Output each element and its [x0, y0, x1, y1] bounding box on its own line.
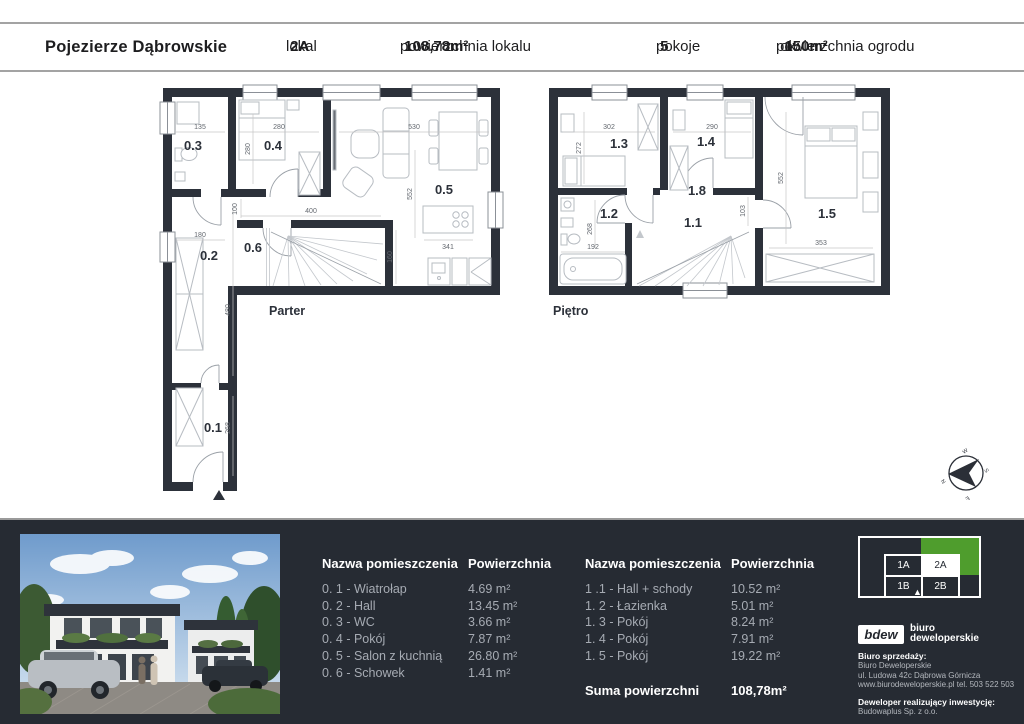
dim-280-v: 280: [245, 143, 252, 155]
area-field: powierzchnia lokalu 108,78m²: [400, 24, 468, 70]
logo-line-2: deweloperskie: [910, 634, 979, 644]
table-row: 1. 3 - Pokój8.24 m²: [585, 614, 814, 631]
footer-band: Nazwa pomieszczenia Powierzchnia 0. 1 - …: [0, 518, 1024, 724]
dim-552-pietro: 552: [778, 172, 785, 184]
building-photo: [20, 534, 280, 714]
sales-office-name: Biuro Deweloperskie: [858, 661, 1018, 671]
unit-selector: 1A 2A 1B 2B ▲: [858, 536, 981, 598]
row-area: 8.24 m²: [731, 614, 773, 631]
room-0-5: 0.5: [435, 182, 453, 197]
row-area: 7.87 m²: [468, 631, 510, 648]
table-row: 0. 6 - Schowek1.41 m²: [322, 665, 551, 682]
row-name: 1. 3 - Pokój: [585, 614, 731, 631]
compass-w: W: [962, 447, 970, 455]
row-area: 5.01 m²: [731, 598, 773, 615]
compass-e: E: [964, 494, 971, 500]
floorplan-parter: 135 280 530 280 552 400 100 341 160 180 …: [158, 83, 503, 500]
room-1-3: 1.3: [610, 136, 628, 151]
col-name-header: Nazwa pomieszczenia: [585, 556, 731, 573]
sum-label: Suma powierzchni: [585, 683, 731, 698]
room-0-1: 0.1: [204, 420, 222, 435]
table-header: Nazwa pomieszczenia Powierzchnia: [322, 556, 551, 573]
sum-value: 108,78m²: [731, 683, 787, 698]
developer-label: Deweloper realizujący inwestycję:: [858, 697, 1018, 707]
parter-stairs: [267, 228, 384, 286]
table-row: 1. 2 - Łazienka5.01 m²: [585, 598, 814, 615]
sales-office-contact: www.biurodeweloperskie.pl tel. 503 522 5…: [858, 680, 1018, 690]
dim-480: 480: [225, 304, 232, 316]
dim-290: 290: [706, 124, 718, 131]
table-row: 0. 3 - WC3.66 m²: [322, 614, 551, 631]
table-row: 1. 5 - Pokój19.22 m²: [585, 648, 814, 665]
row-name: 1 .1 - Hall + schody: [585, 581, 731, 598]
table-row: 0. 5 - Salon z kuchnią26.80 m²: [322, 648, 551, 665]
row-name: 0. 4 - Pokój: [322, 631, 468, 648]
room-1-4: 1.4: [697, 134, 716, 149]
dim-268-pietro: 268: [587, 223, 594, 235]
bdew-logo-mark: bdew: [858, 625, 904, 644]
dim-180: 180: [194, 232, 206, 239]
table-header: Nazwa pomieszczenia Powierzchnia: [585, 556, 814, 573]
dim-302: 302: [603, 124, 615, 131]
row-name: 0. 6 - Schowek: [322, 665, 468, 682]
table-row: 0. 4 - Pokój7.87 m²: [322, 631, 551, 648]
parter-furniture: [175, 100, 491, 446]
dim-100: 100: [232, 203, 239, 215]
unit-cell-1a[interactable]: 1A: [884, 554, 923, 577]
room-0-4: 0.4: [264, 138, 283, 153]
row-area: 4.69 m²: [468, 581, 510, 598]
dim-280-h: 280: [273, 124, 285, 131]
unit-cell-2a[interactable]: 2A: [921, 554, 960, 577]
unit-cell-2b[interactable]: 2B: [921, 575, 960, 598]
garden-approx: ok.: [780, 24, 800, 70]
row-name: 1. 5 - Pokój: [585, 648, 731, 665]
row-name: 0. 3 - WC: [322, 614, 468, 631]
row-name: 1. 4 - Pokój: [585, 631, 731, 648]
rooms-label: pokoje: [656, 24, 700, 70]
col-name-header: Nazwa pomieszczenia: [322, 556, 468, 573]
project-title: Pojezierze Dąbrowskie: [45, 24, 227, 70]
parter-caption: Parter: [269, 304, 305, 318]
developer-name: Budowaplus Sp. z o.o.: [858, 707, 1018, 717]
row-area: 13.45 m²: [468, 598, 517, 615]
pietro-room-labels: 1.3 1.4 1.8 1.2 1.1 1.5: [600, 134, 836, 230]
row-area: 19.22 m²: [731, 648, 780, 665]
table-row: 0. 1 - Wiatrołap4.69 m²: [322, 581, 551, 598]
pietro-doors: [597, 97, 803, 228]
row-name: 0. 2 - Hall: [322, 598, 468, 615]
selector-entrance-arrow-icon: ▲: [913, 587, 922, 597]
garden-field: powierzchnia ogrodu ok. 150m²: [776, 24, 828, 70]
bdew-logo: bdew biuro deweloperskie: [858, 624, 1018, 644]
row-area: 10.52 m²: [731, 581, 780, 598]
dim-160: 160: [387, 251, 394, 263]
room-1-8: 1.8: [688, 183, 706, 198]
floorplan-pietro: 302 290 272 552 103 268 192 353 1.3 1.4 …: [544, 83, 895, 300]
dim-530: 530: [408, 124, 420, 131]
table-row: 1 .1 - Hall + schody10.52 m²: [585, 581, 814, 598]
row-area: 1.41 m²: [468, 665, 510, 682]
header-bar: Pojezierze Dąbrowskie lokal 2A powierzch…: [0, 22, 1024, 72]
rooms-field: pokoje 5: [656, 24, 669, 70]
sales-office-address: ul. Ludowa 42c Dąbrowa Górnicza: [858, 671, 1018, 681]
dim-135: 135: [194, 124, 206, 131]
entrance-arrow-icon: [213, 490, 225, 500]
row-name: 0. 1 - Wiatrołap: [322, 581, 468, 598]
room-0-3: 0.3: [184, 138, 202, 153]
row-name: 0. 5 - Salon z kuchnią: [322, 648, 468, 665]
row-area: 3.66 m²: [468, 614, 510, 631]
unit-grid: 1A 2A 1B 2B: [885, 555, 959, 597]
unit-field: lokal 2A: [286, 24, 309, 70]
dim-103: 103: [740, 205, 747, 217]
bdew-logo-text: biuro deweloperskie: [910, 624, 979, 644]
area-label: powierzchnia lokalu: [400, 24, 531, 70]
compass-icon: W S E N: [938, 444, 994, 500]
dim-353: 353: [815, 240, 827, 247]
unit-label: lokal: [286, 24, 317, 70]
dim-272: 272: [576, 142, 583, 154]
dim-268: 268: [225, 422, 232, 434]
pietro-stairs: [636, 230, 749, 286]
room-0-2: 0.2: [200, 248, 218, 263]
room-1-5: 1.5: [818, 206, 836, 221]
room-1-2: 1.2: [600, 206, 618, 221]
row-area: 7.91 m²: [731, 631, 773, 648]
sum-row: Suma powierzchni 108,78m²: [585, 683, 814, 698]
pietro-caption: Piętro: [553, 304, 588, 318]
room-1-1: 1.1: [684, 215, 702, 230]
row-name: 1. 2 - Łazienka: [585, 598, 731, 615]
col-area-header: Powierzchnia: [468, 556, 551, 573]
parter-room-table: Nazwa pomieszczenia Powierzchnia 0. 1 - …: [322, 556, 551, 682]
pietro-room-table: Nazwa pomieszczenia Powierzchnia 1 .1 - …: [585, 556, 814, 698]
dim-552: 552: [407, 188, 414, 200]
dim-341: 341: [442, 244, 454, 251]
sales-office-label: Biuro sprzedaży:: [858, 651, 1018, 661]
dim-192: 192: [587, 244, 599, 251]
company-block: bdew biuro deweloperskie Biuro sprzedaży…: [858, 624, 1018, 716]
col-area-header: Powierzchnia: [731, 556, 814, 573]
row-area: 26.80 m²: [468, 648, 517, 665]
room-0-6: 0.6: [244, 240, 262, 255]
table-row: 1. 4 - Pokój7.91 m²: [585, 631, 814, 648]
compass-n: N: [940, 478, 947, 485]
dim-400: 400: [305, 208, 317, 215]
table-row: 0. 2 - Hall13.45 m²: [322, 598, 551, 615]
